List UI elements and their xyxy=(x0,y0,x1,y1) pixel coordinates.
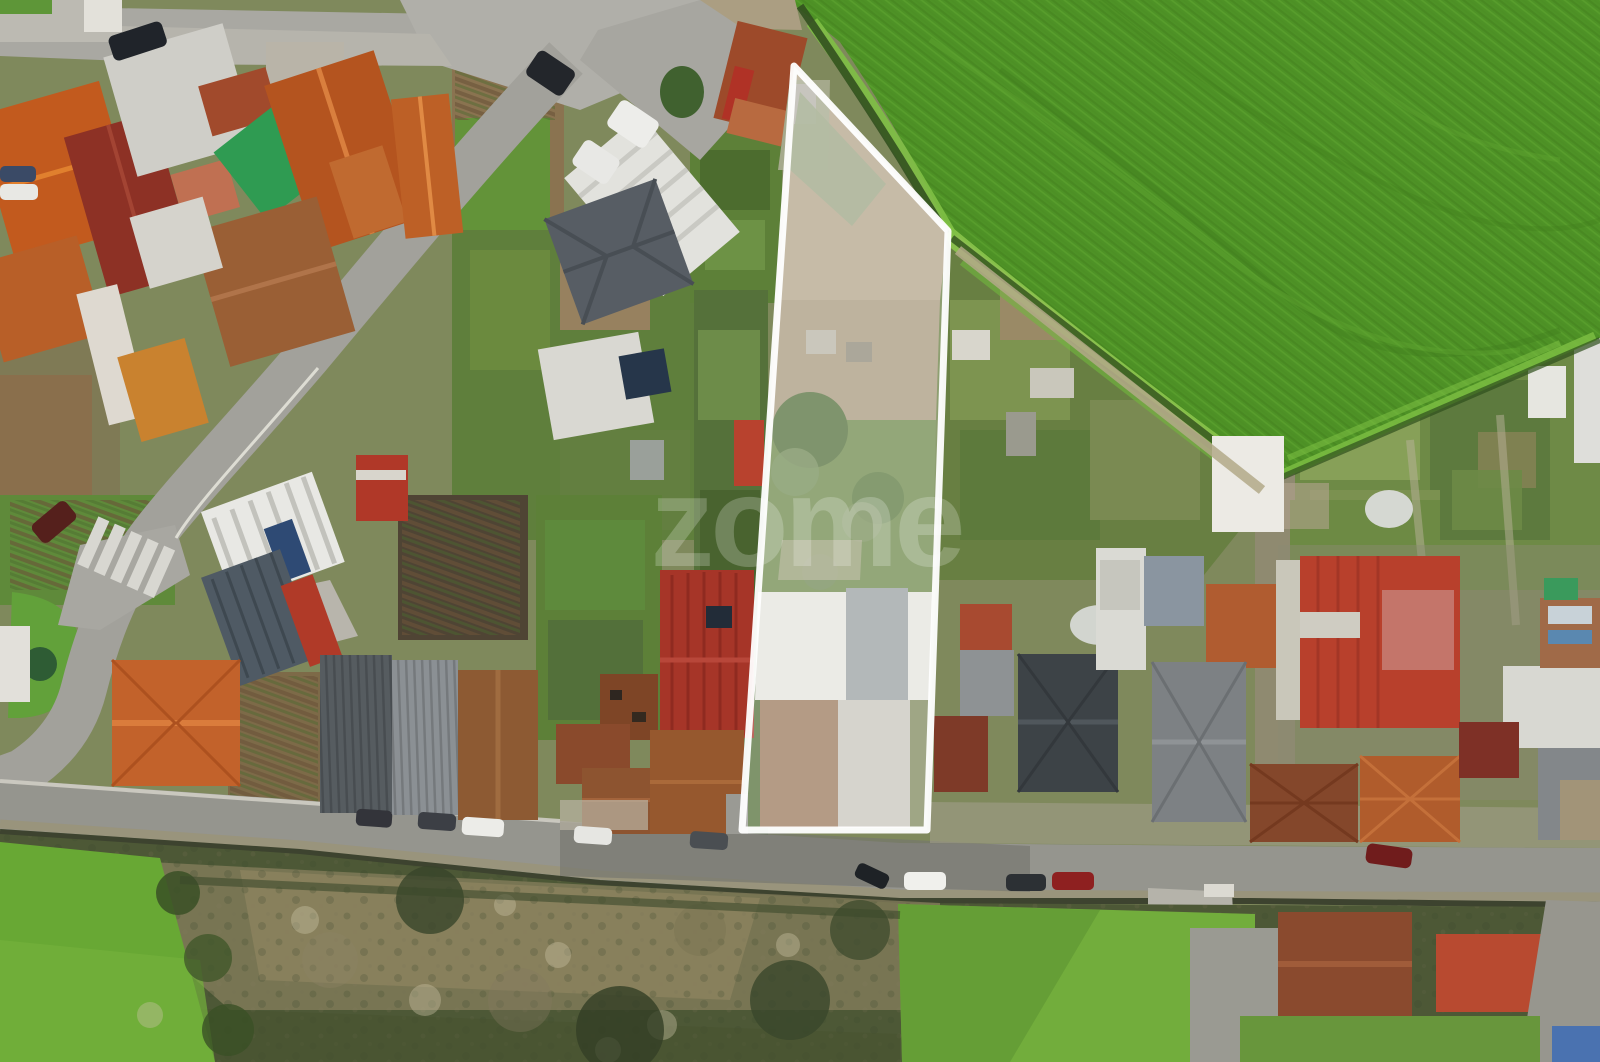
svg-text:zome: zome xyxy=(650,451,961,594)
